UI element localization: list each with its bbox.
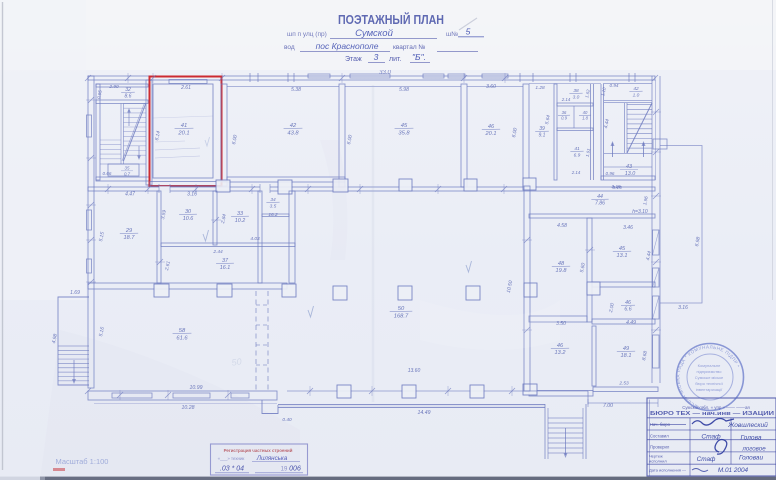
svg-text:інвентаризації: інвентаризації [696, 387, 723, 392]
svg-text:61.6: 61.6 [176, 335, 188, 341]
svg-text:5.98: 5.98 [399, 87, 409, 93]
svg-text:Комунальне: Комунальне [698, 363, 721, 368]
svg-text:ш№: ш№ [446, 31, 458, 38]
svg-text:5.38: 5.38 [291, 87, 301, 93]
svg-text:2.14: 2.14 [571, 170, 581, 175]
svg-text:3: 3 [374, 52, 379, 62]
svg-text:19.8: 19.8 [556, 268, 568, 274]
svg-text:13.2: 13.2 [555, 350, 567, 356]
svg-text:13.1: 13.1 [617, 253, 628, 259]
svg-text:БЮРО ТЕХ — нач.инв — ИЗАЦИИ: БЮРО ТЕХ — нач.инв — ИЗАЦИИ [650, 411, 774, 417]
svg-text:Стаф: Стаф [701, 434, 721, 441]
svg-text:5: 5 [466, 27, 471, 37]
svg-text:18.7: 18.7 [124, 235, 136, 241]
svg-text:3.5: 3.5 [270, 203, 277, 209]
svg-text:.03 * 04: .03 * 04 [220, 466, 244, 473]
svg-text:1.8: 1.8 [582, 116, 588, 121]
svg-text:h=3.10: h=3.10 [632, 209, 648, 215]
svg-text:Стаф: Стаф [697, 456, 716, 463]
svg-text:168.7: 168.7 [394, 313, 409, 319]
svg-text:50: 50 [231, 356, 242, 367]
svg-text:лит.: лит. [389, 56, 401, 63]
svg-text:7.86: 7.86 [595, 201, 605, 207]
svg-text:3.16: 3.16 [187, 192, 197, 198]
svg-text:3.15: 3.15 [611, 184, 621, 190]
svg-text:10.6: 10.6 [183, 216, 194, 222]
svg-text:3.16: 3.16 [678, 305, 688, 311]
svg-text:43: 43 [626, 164, 632, 170]
svg-text:шп п улц (пр): шп п улц (пр) [287, 31, 327, 38]
svg-text:исполнил: исполнил [649, 459, 667, 464]
svg-text:43.8: 43.8 [287, 130, 299, 136]
svg-text:0.9: 0.9 [561, 116, 567, 121]
svg-text:6.9: 6.9 [574, 152, 581, 158]
svg-text:1.28: 1.28 [535, 85, 545, 91]
svg-text:Сумской: Сумской [355, 28, 393, 39]
svg-text:14.49: 14.49 [418, 410, 431, 416]
svg-text:"Б".: "Б". [412, 52, 426, 62]
svg-text:М.01 2004: М.01 2004 [718, 467, 749, 474]
svg-text:4.58: 4.58 [557, 223, 567, 229]
svg-text:3.46: 3.46 [623, 225, 633, 231]
svg-text:бюро технічної: бюро технічної [695, 381, 723, 386]
svg-text:7.00: 7.00 [603, 403, 613, 409]
svg-text:квартал №: квартал № [393, 44, 425, 51]
svg-text:36: 36 [562, 110, 567, 115]
svg-text:Голова: Голова [740, 435, 761, 442]
svg-text:2.53: 2.53 [618, 381, 629, 387]
svg-text:вод: вод [284, 44, 295, 51]
svg-text:логовое: логовое [741, 446, 766, 453]
svg-text:0.94: 0.94 [610, 83, 619, 88]
svg-text:4.47: 4.47 [125, 192, 135, 198]
svg-text:006: 006 [289, 466, 301, 473]
svg-text:20.1: 20.1 [177, 130, 189, 136]
svg-text:35.8: 35.8 [398, 130, 410, 136]
svg-text:2.44: 2.44 [212, 249, 223, 255]
svg-text:8.6: 8.6 [125, 94, 132, 100]
svg-text:2.90: 2.90 [108, 84, 119, 90]
svg-text:6.6: 6.6 [624, 307, 631, 313]
svg-text:Дата исполнения —: Дата исполнения — [649, 468, 686, 473]
svg-text:16.2: 16.2 [268, 212, 278, 218]
svg-text:Головаи: Головаи [739, 455, 763, 462]
svg-text:20.1: 20.1 [485, 131, 497, 137]
svg-text:Этаж: Этаж [345, 56, 362, 63]
svg-text:пос Краснополе: пос Краснополе [316, 41, 379, 51]
svg-text:16.1: 16.1 [220, 265, 231, 271]
svg-text:1.69: 1.69 [70, 290, 80, 296]
svg-text:2.14: 2.14 [561, 97, 571, 102]
svg-text:Сумське міське: Сумське міське [695, 375, 724, 380]
svg-text:Жовшлеский: Жовшлеский [727, 421, 768, 429]
svg-text:40: 40 [583, 110, 588, 115]
svg-text:10.2: 10.2 [235, 218, 246, 224]
svg-text:ПОЭТАЖНЫЙ ПЛАН: ПОЭТАЖНЫЙ ПЛАН [338, 12, 444, 27]
svg-text:Составил: Составил [650, 434, 669, 439]
svg-text:3.60: 3.60 [486, 84, 496, 90]
svg-text:Масштаб 1:100: Масштаб 1:100 [56, 457, 109, 466]
svg-text:9.1: 9.1 [539, 133, 546, 139]
svg-text:«___» техник: «___» техник [218, 456, 245, 461]
svg-text:0.7: 0.7 [124, 172, 131, 177]
svg-text:Регистрация частных строений: Регистрация частных строений [224, 448, 293, 453]
svg-text:13.60: 13.60 [408, 368, 421, 374]
svg-text:2.61: 2.61 [180, 85, 191, 91]
svg-text:Проверил: Проверил [650, 445, 670, 450]
svg-text:Лилянська: Лилянська [256, 455, 288, 462]
svg-text:4.03: 4.03 [250, 236, 260, 242]
svg-text:0.66: 0.66 [103, 171, 112, 176]
svg-text:4.49: 4.49 [626, 320, 636, 326]
svg-text:19: 19 [281, 467, 288, 473]
svg-text:3.0: 3.0 [573, 94, 580, 100]
svg-text:18.1: 18.1 [621, 353, 632, 359]
svg-text:0.96: 0.96 [606, 171, 615, 176]
svg-text:підприємство: підприємство [697, 369, 723, 374]
svg-text:1.0: 1.0 [633, 92, 640, 98]
svg-text:35: 35 [125, 166, 130, 171]
